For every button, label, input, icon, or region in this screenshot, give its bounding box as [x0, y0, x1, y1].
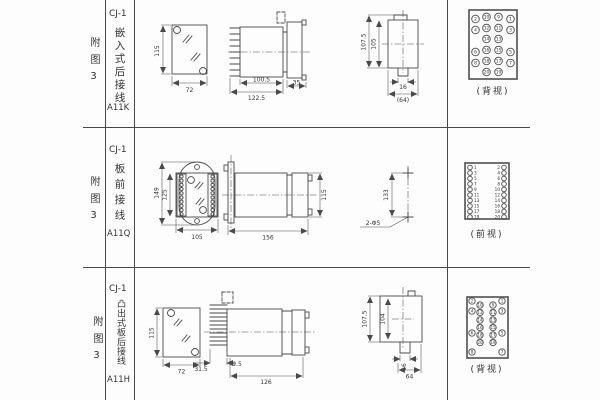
- terminal-number: 5: [474, 176, 477, 181]
- grid-vline-3: [447, 0, 448, 400]
- terminal-number: 14: [477, 317, 483, 322]
- terminal-number: 13: [496, 37, 502, 43]
- mount-label-row3: 凸出式板后接线: [115, 299, 124, 366]
- terminal-number: 11: [490, 310, 496, 315]
- view-label-row2: (前视): [456, 227, 518, 240]
- dim-156: 156: [262, 235, 274, 242]
- terminal-number: 18: [477, 332, 483, 337]
- dim-35: 35: [293, 80, 301, 87]
- dim-107-5: 107.5: [362, 310, 369, 327]
- terminal-number: 1: [474, 165, 477, 170]
- terminal-back-view-row3: 2 4 6 8 10 12 14 16 18 20 9 11 13 15 17 …: [465, 295, 535, 365]
- terminal-number: 4: [471, 308, 474, 313]
- terminal-number: 5: [501, 330, 504, 335]
- terminal-number: 11: [474, 193, 480, 198]
- mounting-hole: [174, 27, 181, 34]
- side-view-drawing-row2: 115 156: [222, 145, 334, 245]
- terminal-number: 2: [497, 165, 500, 170]
- terminal-number: 17: [496, 59, 502, 65]
- terminal-number: 10: [477, 302, 483, 307]
- terminal-number: 14: [495, 198, 501, 203]
- technical-drawing-sheet: 附图3 CJ-1 嵌入式后接线 A11K (背视) 115 72 100.5 1…: [0, 0, 600, 400]
- terminal-number: 10: [495, 187, 501, 192]
- model-label-row1: CJ-1: [109, 9, 127, 19]
- dashed-clamp: [222, 292, 233, 303]
- terminal-number: 8: [474, 61, 477, 67]
- mounting-hole: [168, 310, 175, 317]
- dim-72: 72: [178, 369, 186, 376]
- grid-hline-2: [83, 267, 530, 268]
- mount-label-row1: 嵌入式后接线: [114, 27, 125, 105]
- hatch-mark: [182, 335, 190, 342]
- dim-16: 16: [401, 363, 408, 371]
- terminal-number: 15: [496, 48, 502, 54]
- terminal-number: 15: [474, 204, 480, 209]
- terminal-number: 19: [474, 215, 480, 220]
- grid-vline-2: [134, 0, 135, 400]
- dim-100-5: 100.5: [253, 77, 270, 84]
- dim-126: 126: [260, 379, 272, 386]
- dim-105: 105: [371, 38, 378, 50]
- code-label-row3: A11H: [107, 375, 130, 385]
- terminal-number: 3: [509, 28, 512, 34]
- terminal-number: 20: [484, 70, 490, 76]
- terminal-number: 13: [474, 198, 480, 203]
- dim-64: 64: [406, 374, 414, 381]
- model-label-row2: CJ-1: [109, 145, 127, 155]
- dim-115: 115: [149, 327, 156, 339]
- terminal-number: 4: [474, 28, 477, 34]
- hatch-mark: [196, 198, 204, 205]
- grid-hline-1: [83, 127, 530, 128]
- terminal-number: 18: [484, 59, 490, 65]
- terminal-number: 14: [484, 37, 490, 43]
- dim-115: 115: [154, 45, 161, 57]
- dim-16: 16: [399, 84, 407, 91]
- terminal-number: 10: [484, 15, 490, 21]
- terminal-number: 11: [496, 26, 502, 32]
- terminal-number: 13: [490, 317, 496, 322]
- fig-label-row3: 附图3: [91, 316, 101, 368]
- terminal-pins: [210, 305, 227, 345]
- terminal-number: 12: [495, 193, 501, 198]
- dim-72: 72: [186, 87, 194, 94]
- model-label-row3: CJ-1: [109, 284, 127, 294]
- dim-149: 149: [154, 187, 161, 199]
- terminal-number: 9: [492, 302, 495, 307]
- fig-label-row2: 附图3: [88, 176, 98, 228]
- dim-133: 133: [383, 189, 390, 201]
- screw-hole: [195, 165, 200, 170]
- dim-9-5: 9.5: [232, 361, 242, 368]
- hole-callout: 2-Φ5: [366, 220, 381, 227]
- dim-64: (64): [397, 97, 409, 104]
- hatch-mark: [195, 182, 203, 189]
- dim-31-5: 31.5: [194, 366, 208, 373]
- dashed-clamp: [277, 12, 285, 23]
- terminal-number: 6: [474, 50, 477, 56]
- terminal-number: 4: [497, 171, 500, 176]
- terminal-number: 7: [501, 349, 504, 354]
- terminal-number: 5: [509, 50, 512, 56]
- terminal-number: 9: [474, 187, 477, 192]
- fig-label-row1: 附图3: [88, 37, 98, 89]
- terminal-number: 6: [497, 176, 500, 181]
- terminal-front-view-row2: 1 3 5 7 9 11 13 15 17 19 2 4 6 8 10 12 1…: [462, 161, 532, 223]
- terminal-number: 17: [490, 332, 496, 337]
- side-view-drawing-row3: 31.5 9.5 126: [190, 280, 355, 392]
- terminal-number: 16: [495, 204, 501, 209]
- terminal-number: 6: [471, 330, 474, 335]
- mounting-hole: [200, 68, 207, 75]
- code-label-row2: A11Q: [107, 229, 130, 239]
- screw-hole: [195, 219, 200, 224]
- dim-105: 105: [191, 234, 203, 241]
- terminal-number: 20: [477, 340, 483, 345]
- side-view-drawing-row1: 100.5 122.5 35: [228, 8, 338, 108]
- dim-122-5: 122.5: [248, 95, 265, 102]
- terminal-number: 16: [484, 48, 490, 54]
- terminal-number: 2: [474, 17, 477, 23]
- terminal-number: 16: [477, 325, 483, 330]
- rear-view-drawing-row1: 107.5 105 16 (64): [362, 8, 444, 108]
- terminal-number: 8: [497, 182, 500, 187]
- dim-107-5: 107.5: [361, 33, 368, 50]
- terminal-number: 15: [490, 325, 496, 330]
- mounting-hole: [188, 177, 195, 184]
- terminal-number: 9: [497, 15, 500, 21]
- code-label-row1: A11K: [107, 103, 129, 113]
- terminal-number: 20: [495, 215, 501, 220]
- rear-view-drawing-row3: 107.5 104 16 64: [362, 285, 447, 393]
- terminal-number: 2: [471, 298, 474, 303]
- drill-plan-drawing-row2: 133 2-Φ5: [358, 158, 438, 253]
- terminal-number: 3: [474, 171, 477, 176]
- terminal-number: 19: [496, 70, 502, 76]
- hatch-mark: [183, 35, 192, 43]
- terminal-number: 12: [477, 310, 483, 315]
- dim-125: 125: [162, 189, 169, 201]
- terminal-number: 7: [474, 182, 477, 187]
- mount-label-row2: 板前接线: [114, 163, 125, 225]
- hatch-mark: [174, 319, 182, 326]
- terminal-number: 12: [484, 26, 490, 32]
- terminal-number: 19: [490, 340, 496, 345]
- terminal-number: 17: [474, 209, 480, 214]
- dim-115: 115: [321, 189, 328, 201]
- terminal-number: 18: [495, 209, 501, 214]
- terminal-number: 1: [509, 17, 512, 23]
- mounting-hole: [200, 207, 207, 214]
- terminal-number: 3: [501, 308, 504, 313]
- strip-screws: [180, 175, 214, 216]
- terminal-number: 8: [471, 349, 474, 354]
- terminal-back-view-row1: 2 10 9 1 4 12 11 3 14 13 6 16 15 5 8 18 …: [463, 8, 535, 86]
- hatch-mark: [191, 53, 200, 61]
- grid-vline-1: [105, 0, 106, 400]
- terminal-number: 7: [509, 61, 512, 67]
- dim-104: 104: [380, 313, 387, 325]
- terminal-number: 1: [501, 298, 504, 303]
